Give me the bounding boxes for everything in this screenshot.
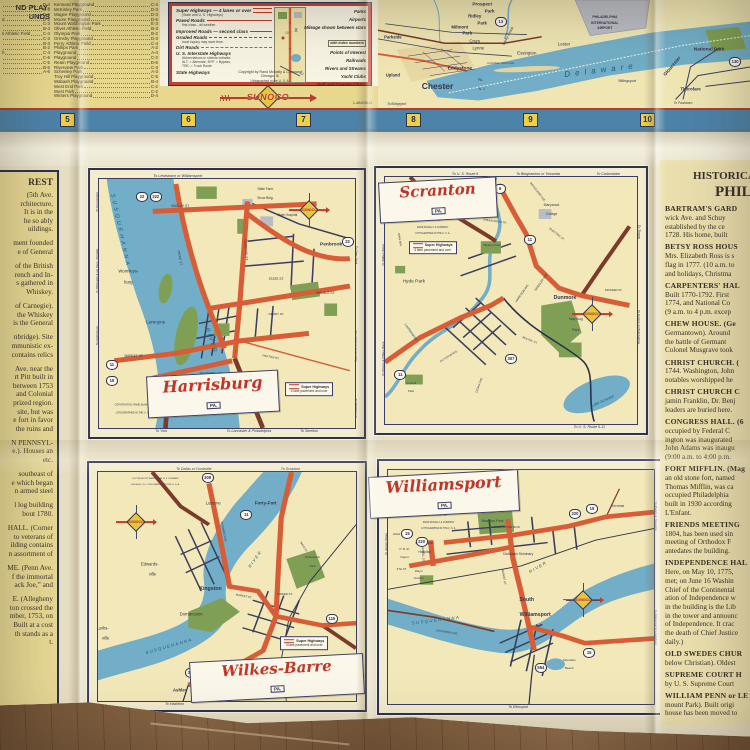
route-shield-icon: 15	[583, 648, 595, 658]
edge-label: To Carbondale	[596, 172, 619, 176]
map-label: N. J.	[479, 87, 486, 91]
city-title-banner: HarrisburgPA.	[146, 370, 280, 419]
edge-label: To Duncannon	[95, 192, 99, 212]
text-fragment-line: rench and In-	[15, 271, 53, 280]
city-title: Williamsport	[375, 471, 512, 497]
historical-entry-title: SUPREME COURT H	[665, 671, 750, 680]
photo-of-folded-road-map: ND PLAY- UNDS D-4B-5D-3d.D-2C-3B-4s Athl…	[0, 0, 750, 750]
text-fragment-line: ack Joe,” and	[14, 581, 53, 590]
leader-dots	[83, 11, 150, 12]
historical-entry-line: and holidays, Christma	[665, 270, 750, 279]
map-label: AIRPORT	[597, 26, 612, 30]
map-label: Brandon Park	[482, 519, 504, 523]
text-fragment-line: l log building	[14, 501, 53, 510]
map-label: Lemoyne	[146, 320, 165, 325]
text-fragment-line: nbridge). Site	[14, 333, 53, 342]
text-fragment-line: t.	[49, 638, 53, 647]
legend-label: Improved Roads — second class	[176, 29, 248, 34]
map-label: Way's	[415, 569, 423, 573]
grid-ref: D-4	[151, 94, 158, 99]
text-fragment-line: th stands as a	[15, 630, 53, 639]
map-label: Dorranceton	[180, 611, 203, 616]
text-fragment-block: (5th Ave.rchitecture,It is in thehe so a…	[0, 191, 53, 234]
historical-entry: WILLIAM PENN or LEmount Park). Built ori…	[665, 692, 750, 718]
sunoco-compass-icon: SUNOCO	[575, 297, 609, 331]
historical-entry-line: flag in 1777. (10 a.m. to	[665, 261, 750, 270]
legend-super-symbol	[253, 8, 272, 13]
svg-text:★: ★	[288, 46, 292, 51]
map-label: LITHOGRAPHED IN THE U. S. A.	[421, 528, 456, 530]
historical-entry-line: 1774, and National Co	[665, 299, 750, 308]
svg-text:10.7: 10.7	[285, 31, 292, 35]
leader-dots	[3, 39, 42, 40]
route-shield-icon: 11	[394, 370, 406, 380]
grid-number: 8	[406, 113, 421, 127]
text-fragment-block: of the Britishrench and In-s gathered in…	[0, 262, 53, 296]
grid-number: 6	[181, 113, 196, 127]
map-label: Dickinson Seminary	[503, 552, 533, 556]
route-shield-icon: 15	[586, 504, 598, 514]
historical-entry: CHRIST CHURCH. (1744. Washington, Johnno…	[665, 359, 750, 385]
sunoco-compass-icon: SUNOCO	[566, 583, 600, 617]
map-label: PHILADELPHIA	[592, 15, 617, 19]
text-fragment-line: ment founded	[13, 239, 53, 248]
leader-dots	[3, 59, 42, 60]
map-label: WYOMING AVE.	[220, 522, 228, 543]
legend-shield-symbol	[233, 51, 272, 56]
leader-dots	[3, 68, 42, 69]
historical-entry-line: mount Park). Built origi	[665, 701, 750, 710]
text-fragment-line: It is in the	[24, 208, 53, 217]
text-fragment-line: southeast of	[18, 470, 53, 479]
grid-number: 7	[296, 113, 311, 127]
map-label: Depot	[401, 555, 409, 559]
table-scratch	[150, 723, 349, 746]
historical-entry-line: the death of Chief Justice	[665, 629, 750, 638]
map-label: Park	[477, 20, 487, 25]
map-label: WHEELER AVE.	[533, 272, 548, 291]
historical-entry-title: CHRIST CHURCH. (	[665, 359, 750, 368]
map-label: Garden	[414, 576, 424, 580]
legend-feature-item: with index numbers	[328, 40, 366, 47]
inset-map-wilkes-barre: To Dallas or HuntsvilleTo ScrantonTo Haz…	[87, 461, 367, 712]
map-label: DERRY ST.	[269, 312, 285, 316]
leader-dots	[93, 97, 150, 98]
historical-entry-line: wick Ave. and Schuy	[665, 214, 750, 223]
text-fragment-line: e fort in favor	[13, 416, 53, 425]
map-label: RIVER	[204, 327, 218, 354]
map-label: State Farm	[257, 187, 273, 191]
map-label: DRINKER ST.	[605, 288, 622, 292]
parks-index-row: Winters PlaygroundD-4	[54, 94, 158, 99]
historical-entry-line: below Christian). Oldest	[665, 659, 750, 668]
historical-entry: FRIENDS MEETING1804, has been used sinme…	[665, 521, 750, 556]
scranton-map-labels: To U. S. Route 6To Binghamton or Towanda…	[376, 168, 646, 433]
park-name: Winters Playground	[54, 94, 92, 99]
legend-row-top: Improved Roads — second class	[176, 29, 272, 34]
map-label: Prospect	[472, 2, 492, 7]
text-fragment-line: to veterans of	[14, 533, 53, 542]
map-label: PITTSTON AVE.	[439, 349, 458, 364]
plate-number: 1-484258-G	[353, 101, 372, 105]
leader-dots	[79, 49, 150, 50]
map-label: Show Bldg.	[257, 196, 273, 200]
text-fragment-line: e of General	[17, 248, 53, 257]
map-grid-band: 5678910	[0, 108, 750, 134]
historical-entry: BARTRAM'S GARDwick Ave. and Schuyestabli…	[665, 205, 750, 240]
inset-legend-chip: Super Highways4 lane pavement and over	[280, 637, 328, 651]
map-label: Dunmore	[554, 295, 577, 301]
legend-feature-item: Parks	[302, 8, 366, 16]
leader-dots	[84, 87, 150, 88]
leader-dots	[3, 25, 42, 26]
historical-entry-line: 1728. His home, built	[665, 231, 750, 240]
inset-legend-chip: Super Highways4 lane pavement and over	[285, 382, 333, 396]
edge-label: To Pittsburgh & via Penn. Turnpike	[95, 249, 99, 293]
map-label: WALNUT ST.	[316, 291, 335, 295]
state-abbrev: PA.	[438, 501, 452, 509]
route-shield-icon: 22	[136, 192, 148, 202]
historical-entry-line: in the building is the Lib	[665, 603, 750, 612]
leader-dots	[92, 30, 150, 31]
chip-row2: 4 lane pavement and over	[413, 248, 453, 252]
sunoco-logo: SUNOCO	[220, 88, 316, 106]
map-label: INTERNATIONAL	[591, 21, 618, 25]
historical-entry-line: an old stone fort, named	[665, 474, 750, 483]
map-label: ville	[149, 572, 156, 577]
state-abbrev: PA.	[432, 207, 446, 215]
legend-feature-item: Railroads	[302, 57, 366, 65]
edge-label: To York	[155, 429, 167, 433]
text-fragment-line: of the British	[15, 262, 53, 271]
compass-brand: SUNOCO	[128, 520, 144, 524]
map-label: MAIN ST.	[299, 541, 309, 553]
text-fragment-line: site, but was	[17, 408, 53, 417]
map-label: SUSQUEHANNA	[145, 637, 193, 655]
route-shield-icon: 130	[729, 57, 741, 67]
map-legend-area: Super Highways — 4 lanes or over(State a…	[160, 0, 378, 86]
map-label: KIDDER ST.	[277, 592, 292, 596]
historical-entry-line: Here, on May 10, 1775,	[665, 568, 750, 577]
text-fragment-line: Whiskey.	[26, 288, 53, 297]
map-label: Connell	[406, 381, 416, 385]
text-fragment-line: and Colonial	[16, 390, 53, 399]
text-fragment-line: is the General	[13, 319, 53, 328]
edge-label: To Wilkes-Barre	[381, 245, 385, 267]
map-label: Wormleys-	[118, 269, 138, 274]
map-label: Park	[485, 8, 495, 13]
edge-label: To Gettysburg	[95, 326, 99, 345]
inset-legend-chip: Super Highways4 lane pavement and over	[409, 241, 457, 255]
map-label: Penbrook	[320, 242, 342, 247]
map-label: MOOSIC ST.	[522, 335, 538, 345]
map-label: HARRISON AVE.	[514, 283, 530, 303]
map-label: Forty-Fort	[255, 500, 277, 505]
historical-points-text: BARTRAM'S GARDwick Ave. and Schuyestabli…	[660, 205, 750, 718]
legend-row: Dirt Roads	[176, 45, 272, 50]
city-title-banner: ScrantonPA.	[378, 176, 498, 223]
historical-entry: CARPENTERS' HALBuilt 1770-1792. First177…	[665, 282, 750, 317]
map-label: Essington	[517, 50, 536, 55]
map-label: Park	[463, 31, 473, 36]
historical-entry-line: occupied by Federal C	[665, 427, 750, 436]
text-fragment-line: s gathered in	[16, 279, 53, 288]
map-label: MAIN AVE.	[397, 232, 403, 246]
text-fragment-line: rchitecture,	[20, 200, 53, 209]
map-label: Larks-	[97, 626, 109, 631]
edge-label: To Allenwood & Lewisburg	[654, 610, 658, 645]
legend-copyright: Copyright by Rand McNally & Company Chic…	[169, 70, 371, 83]
leader-dots	[84, 68, 150, 69]
map-label: P. R. R.	[399, 547, 409, 551]
historical-entry-line: John Adams was inaugu	[665, 444, 750, 453]
text-fragment-line: n assortment of	[9, 550, 53, 559]
map-label: Delaware	[564, 61, 638, 79]
historical-entry-line: ington was inaugurated	[665, 436, 750, 445]
map-label: Chester	[422, 81, 454, 91]
historical-entry-line: of Independence. It crac	[665, 620, 750, 629]
historical-entry-line: notables worshipped he	[665, 376, 750, 385]
leader-dots	[3, 63, 42, 64]
historical-entry-line: antedates the building.	[665, 547, 750, 556]
text-fragment-line: Ave. near the	[15, 365, 53, 374]
inset-map-scranton: To U. S. Route 6To Binghamton or Towanda…	[374, 166, 648, 435]
harrisburg-map-labels: To Lewistown or WilliamsportSUSQUEHANNAR…	[90, 170, 364, 437]
map-sheet: ND PLAY- UNDS D-4B-5D-3d.D-2C-3B-4s Athl…	[0, 0, 750, 744]
historical-entry: INDEPENDENCE HALHere, on May 10, 1775,me…	[665, 559, 750, 646]
map-label: Upland	[386, 72, 400, 77]
legend-improved-symbol	[250, 31, 272, 32]
map-label: Lynne	[473, 45, 485, 50]
grid-number: 9	[523, 113, 538, 127]
city-title-banner: WilliamsportPA.	[368, 469, 520, 519]
historical-entry: CHEW HOUSE. (GeGermantown). Aroundthe ba…	[665, 320, 750, 355]
historical-entry-line: meeting of Orthodox F	[665, 538, 750, 547]
historical-entry-line: the battle of Germant	[665, 338, 750, 347]
edge-label: To Elimsport	[508, 705, 528, 709]
parks-playgrounds-index: ND PLAY- UNDS D-4B-5D-3d.D-2C-3B-4s Athl…	[0, 0, 160, 108]
edge-label: To Dallas or Huntsville	[176, 467, 212, 471]
historical-entry-title: BARTRAM'S GARD	[665, 205, 750, 214]
edge-label: To Hazleton	[165, 702, 184, 706]
historical-entry-line: 1744. Washington, John	[665, 367, 750, 376]
points-of-interest-text: (5th Ave.rchitecture,It is in thehe so a…	[0, 191, 57, 647]
legend-row: U. S. Interstate HighwaysAbbreviations i…	[176, 51, 272, 68]
text-fragment-line: the ruins and	[16, 425, 53, 434]
historical-entry-title: BETSY ROSS HOUS	[665, 243, 750, 252]
leader-dots	[102, 25, 150, 26]
park-name: s Athletic Field	[2, 32, 30, 37]
historical-entry-line: by U. S. Supreme Court	[665, 680, 750, 689]
historical-entry-title: CARPENTERS' HAL	[665, 282, 750, 291]
leader-dots	[3, 44, 42, 45]
route-shield-icon: 115	[326, 614, 338, 624]
map-label: SUSQUEHANNA	[109, 194, 131, 269]
historical-entry-line: Mrs. Elizabeth Ross is s	[665, 252, 750, 261]
map-label: PA.	[478, 78, 483, 82]
leader-dots	[31, 35, 42, 36]
map-label: PAXTON ST.	[262, 353, 280, 360]
leader-dots	[3, 11, 42, 12]
historical-entry-title: FRIENDS MEETING	[665, 521, 750, 530]
state-abbrev: PA.	[207, 402, 221, 410]
map-label: South	[519, 597, 534, 603]
map-label: FRONT ST.	[177, 250, 184, 266]
sunoco-brand-strip: SUNOCO 1-484258-G	[160, 86, 378, 108]
leader-dots	[5, 54, 41, 55]
legend-paved-symbol	[207, 20, 272, 21]
edge-label: To Throop	[637, 224, 641, 238]
city-title: Harrisburg	[153, 372, 272, 397]
parks-index-left-column: D-4B-5D-3d.D-2C-3B-4s Athletic FieldC-4C…	[2, 3, 50, 75]
state-abbrev: PA.	[270, 685, 284, 693]
philadelphia-heading: PHILA	[660, 182, 750, 205]
historical-entry-line: Colonel Musgrave took	[665, 346, 750, 355]
historical-entry-title: CHRIST CHURCH C	[665, 388, 750, 397]
inset-map-williamsport: To Muncy & TowandaTo Allenwood & Lewisbu…	[377, 459, 665, 715]
legend-subnote: TRK. = Truck Route	[182, 64, 272, 68]
map-label: RAND McNALLY & COMPANY	[423, 522, 455, 524]
map-label: Crum	[469, 39, 480, 44]
map-label: Park	[408, 389, 414, 393]
text-fragment-line: bout 1780.	[22, 510, 53, 519]
legend-label: Dirt Roads	[176, 45, 199, 50]
route-shield-icon: 220	[416, 537, 428, 547]
inset-maps-panel: REST (5th Ave.rchitecture,It is in thehe…	[0, 166, 750, 744]
historical-entry-line: leaders are buried here.	[665, 406, 750, 415]
map-label: RIVER	[247, 550, 263, 570]
text-fragment-line: uildings.	[28, 225, 53, 234]
edge-label: To New York	[354, 246, 358, 265]
map-label: COPYRIGHT BY RAND McNALLY & COMPANY	[132, 478, 179, 480]
map-label: Eddystone	[448, 67, 473, 72]
leader-dots	[3, 6, 42, 7]
map-label: Lackawanna	[404, 323, 419, 342]
map-label: RAND McNALLY & COMPANY	[417, 227, 449, 229]
map-label: ville	[102, 636, 109, 641]
historical-entry-line: L'Enfant.	[665, 509, 750, 518]
city-title: Scranton	[385, 179, 490, 202]
route-shield-icon: 309	[202, 473, 214, 483]
map-label: CAMERON ST.	[243, 239, 249, 261]
text-fragment-line: N PENNSYL-	[11, 439, 53, 448]
route-shield-icon: 322	[150, 192, 162, 202]
map-label: LITHOGRAPHED IN THE U. S. A.	[415, 233, 450, 235]
map-label: Ridley	[468, 14, 481, 19]
edge-label: To Lancaster & Philadelphia	[227, 429, 272, 433]
leader-dots	[7, 20, 42, 21]
historical-entry-line: jamin Franklin, Dr. Benj	[665, 397, 750, 406]
map-label: Mountain	[563, 658, 575, 662]
map-label: SOUTHERN AVE.	[436, 629, 459, 636]
historical-entry-line: Chief of the Continental	[665, 586, 750, 595]
edge-label: To Middletown	[354, 398, 358, 418]
map-label: College	[546, 212, 558, 216]
route-shield-icon: 11	[240, 510, 252, 520]
leader-dots	[92, 15, 150, 16]
text-fragment-line: etc.	[43, 456, 53, 465]
city-title: Wilkes-Barre	[196, 655, 357, 681]
historical-entry-title: CHEW HOUSE. (Ge	[665, 320, 750, 329]
historical-entry-line: met; on June 16 Washin	[665, 577, 750, 586]
map-label: Darby Creek	[502, 26, 515, 46]
text-fragment-line: Built at a cost	[13, 621, 53, 630]
legend-row-top: Dirt Roads	[176, 45, 272, 50]
map-label: National Park	[694, 47, 725, 52]
leader-dots	[90, 63, 150, 64]
map-label: Park	[309, 564, 315, 568]
compass-brand: SUNOCO	[584, 312, 600, 316]
parks-index-right-column: Kennard PlaygroundC-4McKinley ParkD-3Mag…	[54, 3, 158, 99]
leader-dots	[3, 49, 42, 50]
map-label: Weston Field	[483, 243, 500, 247]
text-fragment-block: nbridge). Sitemmunistic ex-contains reli…	[0, 333, 53, 359]
map-label: Williamsport	[520, 612, 551, 618]
text-fragment-block: ment foundede of General	[0, 239, 53, 256]
historical-entry-line: daily.)	[665, 638, 750, 647]
chip-row2: 4 lane pavement and over	[289, 389, 329, 393]
text-fragment-line: (5th Ave.	[27, 191, 53, 200]
historical-entry-title: OLD SWEDES CHUR	[665, 650, 750, 659]
text-fragment-line: the Whiskey	[17, 311, 53, 320]
route-shield-icon: 13	[495, 17, 507, 27]
text-fragment-block: ME. (Penn Ave.f the immortalack Joe,” an…	[0, 564, 53, 590]
map-label: 4TH ST.	[397, 567, 407, 571]
map-label: Lester	[558, 42, 570, 47]
historical-entry-line: (9:00 a.m. to 4:00 p.m.	[665, 453, 750, 462]
text-fragment-line: E. (Allegheny	[13, 595, 53, 604]
map-label: Billingsport	[618, 79, 636, 83]
leader-dots	[94, 39, 150, 40]
text-fragment-block: of Carnegie).the Whiskeyis the General	[0, 302, 53, 328]
compass-brand: SUNOCO	[301, 208, 317, 212]
legend-subnote: local inquiry may save time.	[182, 40, 272, 44]
edge-label: To U. S. Route 6-11	[574, 425, 605, 429]
park-name: h	[2, 51, 4, 56]
map-label: CHICAGO, ILL. LITHOGRAPHED IN THE U. S. …	[131, 484, 180, 486]
historical-entry-title: CONGRESS HALL. (6	[665, 418, 750, 427]
route-shield-icon: 22	[342, 237, 354, 247]
historical-entry-line: Germantown). Around	[665, 329, 750, 338]
map-label: Edwards-	[141, 562, 159, 567]
map-label: MARKET ST.	[501, 568, 508, 585]
edge-label: To Lebanon & Reading	[354, 330, 358, 362]
text-fragment-block: HALL. (Cornerto veterans ofilding contai…	[0, 524, 53, 558]
route-shield-icon: 220	[569, 509, 581, 519]
historical-entry-line: Built 1770-1792. First	[665, 291, 750, 300]
map-label: Ashley	[173, 688, 187, 693]
text-fragment-block: southeast ofe which begann armed steel	[0, 470, 53, 496]
map-label: Luzerne	[206, 500, 221, 505]
map-label: Kenmar	[611, 504, 624, 508]
philadelphia-map-labels: ProspectParkRidleyParkMilmontParkCrumLyn…	[378, 0, 750, 108]
text-fragment-line: mber, 1753, on	[10, 612, 53, 621]
map-label: MACLAY ST.	[171, 204, 189, 208]
historical-entry: CONGRESS HALL. (6occupied by Federal Cin…	[665, 418, 750, 462]
edge-label: To Easton & Philadelphia	[637, 310, 641, 344]
historical-entry-line: established by the ce	[665, 223, 750, 232]
text-fragment-line: contains relics	[12, 351, 53, 360]
map-label: ELECTRIC ST.	[548, 227, 565, 242]
map-label: burg	[124, 280, 132, 285]
compass-brand: SUNOCO	[575, 598, 591, 602]
historical-points-heading: HISTORICAL	[660, 160, 750, 182]
leader-dots	[94, 78, 150, 79]
leader-dots	[3, 73, 42, 74]
text-fragment-line: ton crossed the	[10, 604, 53, 613]
historical-entry-line: in the tower and announc	[665, 612, 750, 621]
text-fragment-line: of Carnegie).	[15, 302, 53, 311]
